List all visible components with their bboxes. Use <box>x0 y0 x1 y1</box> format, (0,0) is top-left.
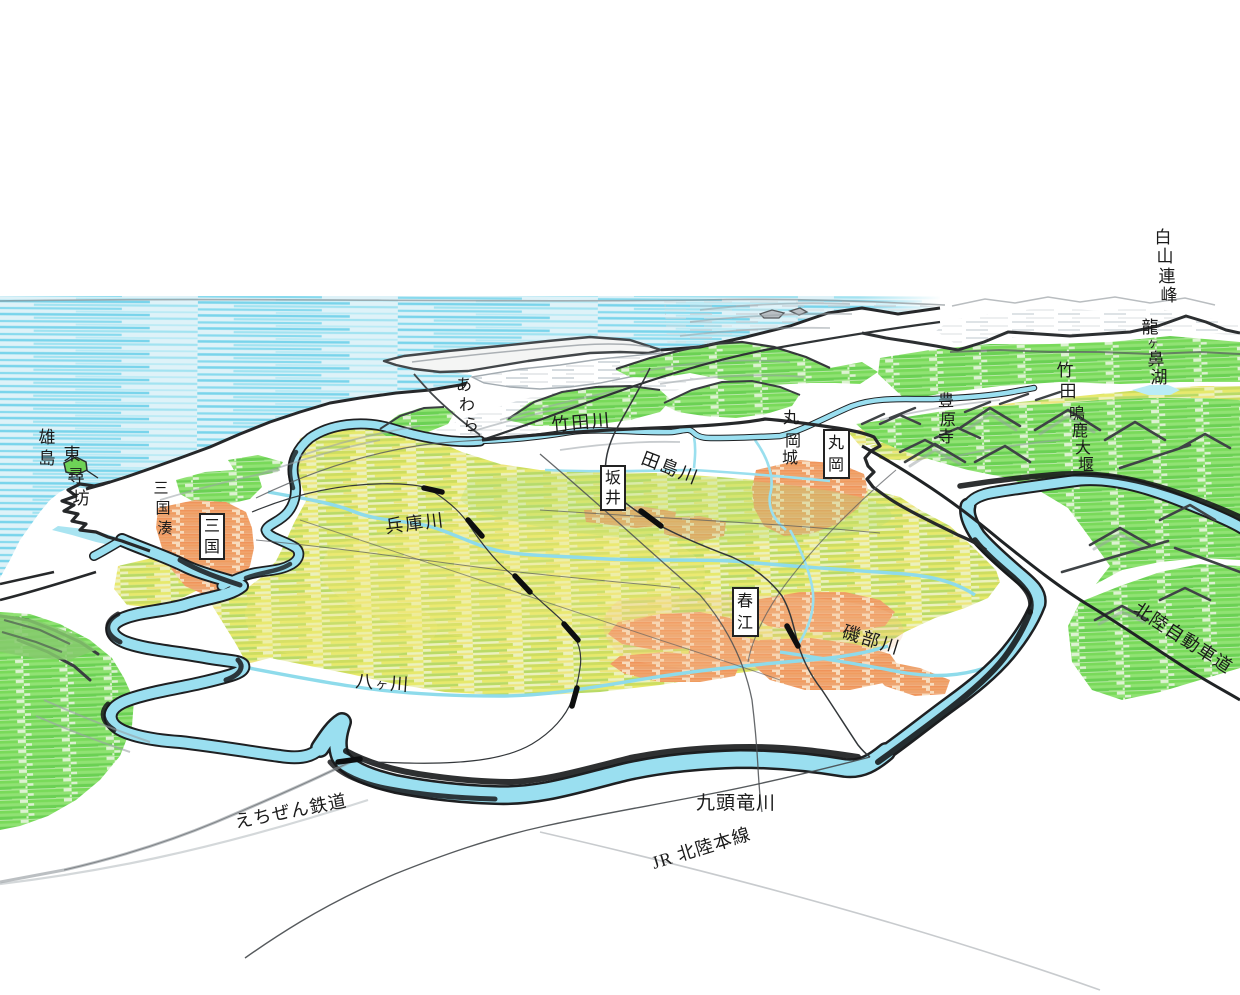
svg-text:丸: 丸 <box>828 434 844 452</box>
svg-text:三: 三 <box>153 481 168 497</box>
svg-text:江: 江 <box>737 614 753 632</box>
svg-text:あ: あ <box>456 376 472 394</box>
svg-text:春: 春 <box>737 592 753 610</box>
svg-text:坂: 坂 <box>605 469 621 487</box>
svg-text:井: 井 <box>605 489 621 507</box>
svg-text:東: 東 <box>64 445 81 464</box>
svg-text:ヶ: ヶ <box>1147 336 1159 350</box>
svg-text:ら: ら <box>463 417 479 434</box>
svg-text:寺: 寺 <box>938 428 954 446</box>
svg-text:竹: 竹 <box>1057 361 1074 380</box>
svg-text:山: 山 <box>1157 247 1174 266</box>
svg-text:国: 国 <box>155 500 170 517</box>
svg-text:国: 国 <box>204 539 220 556</box>
svg-text:岡: 岡 <box>828 457 844 474</box>
svg-text:豊: 豊 <box>938 392 954 410</box>
svg-text:鼻: 鼻 <box>1148 350 1165 369</box>
svg-text:原: 原 <box>940 412 956 429</box>
svg-text:城: 城 <box>782 449 798 467</box>
svg-text:岡: 岡 <box>785 433 801 450</box>
svg-text:峰: 峰 <box>1161 286 1178 305</box>
svg-text:三: 三 <box>204 518 220 535</box>
svg-text:坊: 坊 <box>73 489 90 508</box>
svg-text:湖: 湖 <box>1151 368 1168 387</box>
svg-text:堰: 堰 <box>1078 456 1094 474</box>
svg-text:大: 大 <box>1075 439 1091 457</box>
svg-text:鳴: 鳴 <box>1069 405 1085 423</box>
svg-text:尋: 尋 <box>68 467 85 486</box>
svg-text:湊: 湊 <box>157 520 172 537</box>
svg-text:雄: 雄 <box>39 428 56 447</box>
svg-text:連: 連 <box>1159 267 1176 286</box>
svg-text:九頭竜川: 九頭竜川 <box>696 792 776 814</box>
svg-text:白: 白 <box>1155 228 1172 247</box>
svg-text:龍: 龍 <box>1142 318 1159 337</box>
svg-text:島: 島 <box>39 449 56 468</box>
svg-text:鹿: 鹿 <box>1072 422 1088 440</box>
svg-text:田: 田 <box>1060 382 1077 401</box>
svg-text:丸: 丸 <box>783 409 799 427</box>
svg-text:わ: わ <box>459 396 475 414</box>
